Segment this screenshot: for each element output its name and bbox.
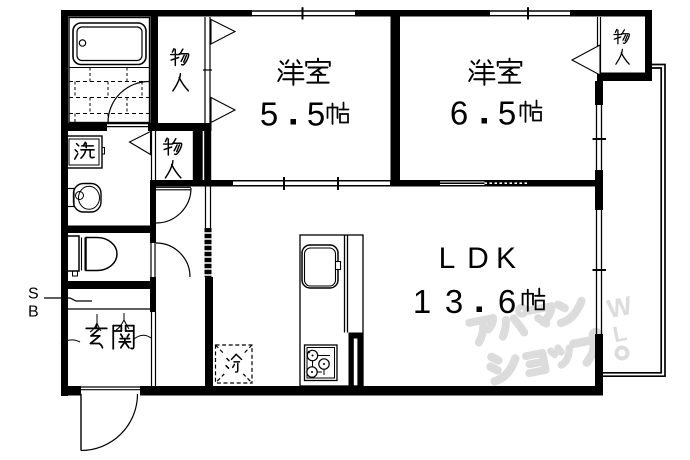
- svg-text:1: 1: [413, 283, 431, 320]
- svg-text:S: S: [28, 286, 39, 303]
- svg-text:5: 5: [307, 96, 325, 133]
- svg-text:K: K: [496, 242, 516, 275]
- svg-text:5: 5: [260, 96, 278, 133]
- svg-text:3: 3: [445, 283, 463, 320]
- svg-text:6: 6: [450, 95, 468, 132]
- svg-text:6: 6: [498, 283, 516, 320]
- svg-text:B: B: [28, 304, 39, 321]
- svg-text:L: L: [439, 242, 456, 275]
- svg-text:5: 5: [498, 95, 516, 132]
- svg-text:D: D: [467, 242, 489, 275]
